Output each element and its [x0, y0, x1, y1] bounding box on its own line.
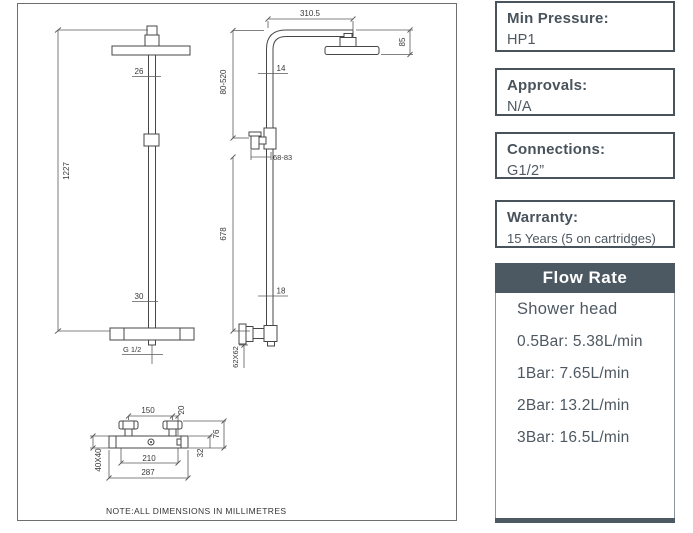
flow-rate-panel: Flow Rate Shower head 0.5Bar: 5.38L/min … [495, 263, 675, 523]
connections-value: G1/2” [507, 163, 663, 179]
dim-label-80-520: 80-520 [219, 69, 228, 94]
dim-bracket-depth: 68-83 [251, 150, 292, 162]
flow-rate-row-2bar: 2Bar: 13.2L/min [517, 398, 674, 414]
warranty-label: Warranty: [507, 209, 663, 226]
dim-label-30: 30 [135, 292, 144, 301]
dim-label-68-83: 68-83 [273, 153, 292, 162]
dim-label-1227: 1227 [62, 162, 71, 180]
flow-rate-footer-bar [495, 518, 675, 523]
dim-label-287: 287 [141, 468, 155, 477]
dim-label-310-5: 310.5 [300, 9, 321, 18]
valve-handles [119, 421, 182, 436]
valve-body-front [109, 436, 188, 448]
dim-valve-centres: 210 [119, 448, 181, 466]
approvals-label: Approvals: [507, 77, 663, 94]
dim-label-678: 678 [219, 227, 228, 241]
side-riser-and-arm [267, 30, 354, 327]
dim-pipe-upper: 26 [132, 67, 161, 77]
dim-label-62x62: 62X62 [231, 346, 240, 368]
dim-valve-body-section: 40X40 [90, 434, 109, 472]
flow-rate-row-1bar: 1Bar: 7.65L/min [517, 366, 674, 382]
dim-wall-plate: 62X62 [231, 343, 248, 369]
dim-outlet-thread: G 1/2 [122, 345, 163, 364]
dim-label-14: 14 [277, 64, 286, 73]
flow-rate-row-3bar: 3Bar: 16.5L/min [517, 430, 674, 446]
dim-label-85: 85 [398, 37, 407, 46]
dim-valve-depth: 76 [183, 419, 227, 451]
flow-rate-row-0-5bar: 0.5Bar: 5.38L/min [517, 334, 674, 350]
dim-pipe-lower: 30 [132, 292, 158, 302]
front-shower-column [112, 26, 190, 330]
dim-valve-outlet-drop: 32 [189, 434, 213, 458]
side-wall-bracket [249, 128, 276, 149]
front-view: 1227 26 30 G 1/2 [55, 26, 194, 364]
info-box-connections: Connections: G1/2” [495, 132, 675, 179]
connections-label: Connections: [507, 141, 663, 158]
dim-label-40x40: 40X40 [94, 448, 103, 472]
technical-drawing: 1227 26 30 G 1/2 [18, 4, 455, 519]
flow-rate-subtitle: Shower head [517, 301, 674, 318]
flow-rate-title: Flow Rate [495, 263, 675, 293]
warranty-value: 15 Years (5 on cartridges) [507, 231, 663, 247]
dim-label-76: 76 [212, 429, 221, 438]
dim-label-20: 20 [177, 405, 186, 414]
side-view: 310.5 85 80-520 [219, 9, 413, 368]
front-valve-body [110, 328, 194, 345]
dim-arm-reach: 310.5 [266, 9, 356, 32]
valve-front-view: 150 20 76 [90, 405, 227, 480]
info-box-approvals: Approvals: N/A [495, 68, 675, 116]
dimensions-note: NOTE:ALL DIMENSIONS IN MILLIMETRES [106, 506, 286, 516]
info-box-warranty: Warranty: 15 Years (5 on cartridges) [495, 200, 675, 248]
info-box-min-pressure: Min Pressure: HP1 [495, 1, 675, 52]
min-pressure-value: HP1 [507, 32, 663, 48]
approvals-value: N/A [507, 99, 663, 115]
dim-label-210: 210 [142, 454, 156, 463]
dim-riser-lower: 678 [219, 155, 250, 334]
technical-diagram-panel: 1227 26 30 G 1/2 [17, 3, 457, 521]
min-pressure-label: Min Pressure: [507, 10, 663, 27]
spec-sheet-page: 1227 26 30 G 1/2 [0, 0, 693, 533]
side-valve-body [239, 324, 277, 346]
flow-rate-body: Shower head 0.5Bar: 5.38L/min 1Bar: 7.65… [495, 293, 675, 518]
dim-label-26: 26 [135, 67, 144, 76]
dim-label-32: 32 [196, 448, 205, 457]
dim-handle-centres: 150 [126, 406, 178, 420]
dim-label-18: 18 [277, 287, 286, 296]
dim-riser-adjust: 80-520 [219, 28, 264, 141]
dim-label-150: 150 [141, 406, 155, 415]
dim-label-g12: G 1/2 [123, 345, 141, 354]
dim-outlet-offset: 20 [176, 405, 187, 435]
